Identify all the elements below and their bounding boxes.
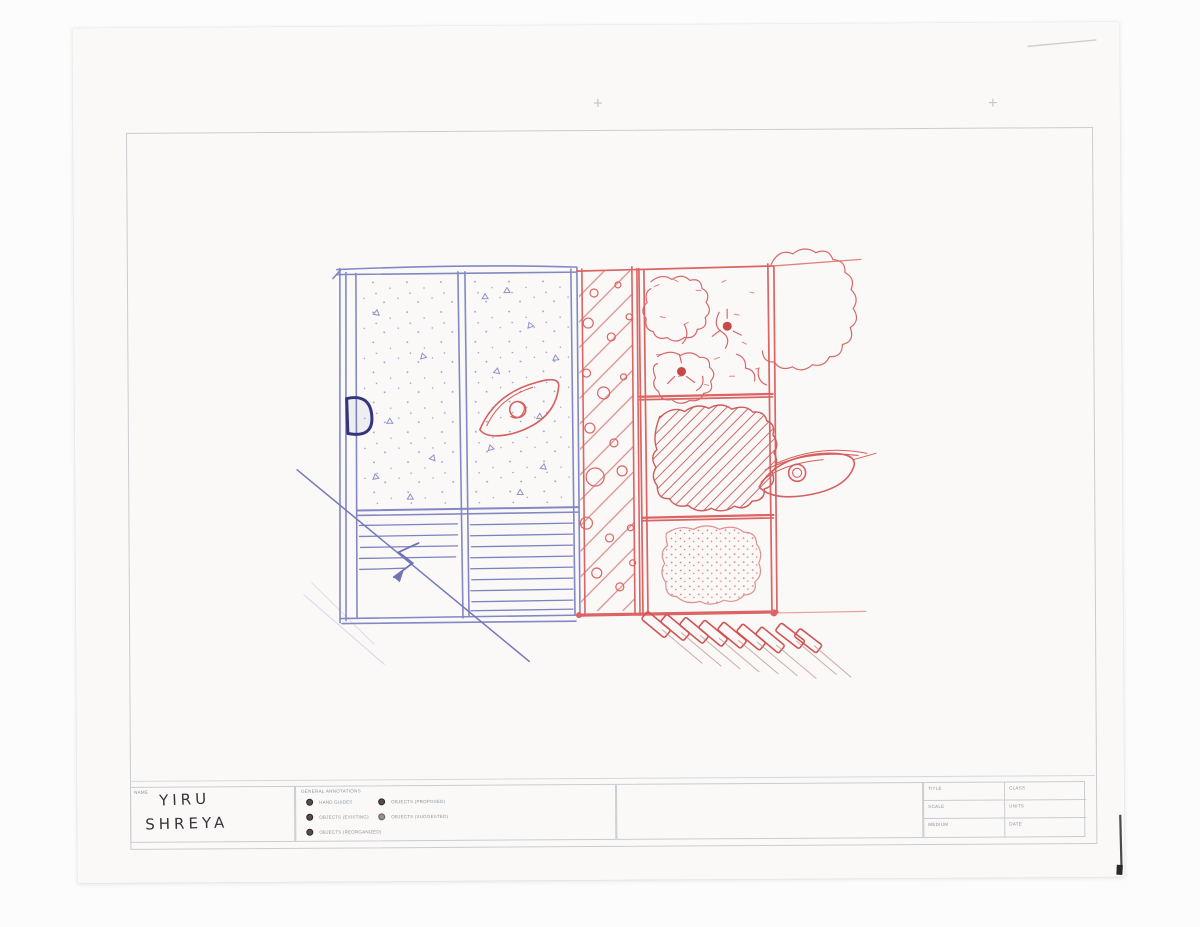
stairs-sketch <box>359 523 573 611</box>
scan-edge-artifacts <box>1027 40 1122 876</box>
red-hatch-column-sketch <box>579 267 640 614</box>
door-handle-sketch <box>347 397 372 434</box>
bricks-sketch <box>641 610 851 680</box>
registration-marks <box>594 97 997 109</box>
blue-structure-sketch <box>333 265 580 623</box>
stippled-blob-sketch <box>662 526 761 605</box>
scribble-cell-sketch <box>642 249 857 404</box>
paper-sheet: NAME YIRU SHREYA GENERAL ANNOTATIONS HAN… <box>72 22 1124 883</box>
scanned-sheet-stage: NAME YIRU SHREYA GENERAL ANNOTATIONS HAN… <box>0 0 1200 927</box>
hatched-blob-sketch <box>652 405 777 512</box>
sketch-canvas <box>72 22 1124 883</box>
